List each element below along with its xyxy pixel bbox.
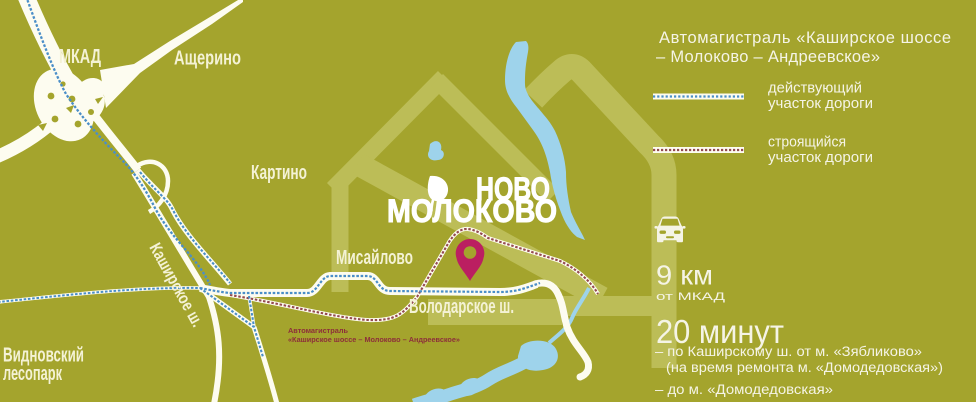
svg-text:лесопарк: лесопарк [3, 363, 63, 385]
svg-text:– по Каширскому ш. от м. «Зябл: – по Каширскому ш. от м. «Зябликово» [655, 344, 922, 359]
svg-text:от МКАД: от МКАД [656, 291, 726, 303]
svg-text:Ащерино: Ащерино [174, 48, 241, 70]
svg-text:МКАД: МКАД [59, 46, 101, 68]
svg-text:МОЛОКОВО: МОЛОКОВО [387, 193, 557, 229]
svg-text:9 км: 9 км [656, 260, 713, 291]
svg-text:Автомагистраль «Каширское шосс: Автомагистраль «Каширское шоссе [659, 29, 951, 47]
svg-text:«Каширское шоссе – Молоково –: «Каширское шоссе – Молоково – Андреевско… [288, 335, 460, 344]
svg-text:– до м. «Домодедовская»: – до м. «Домодедовская» [655, 382, 833, 397]
svg-text:Картино: Картино [251, 162, 307, 184]
svg-text:участок дороги: участок дороги [768, 149, 873, 166]
svg-text:действующий: действующий [768, 80, 862, 97]
svg-text:Володарское ш.: Володарское ш. [409, 296, 514, 318]
svg-text:Мисайлово: Мисайлово [336, 247, 413, 269]
svg-text:– Молоково – Андреевское»: – Молоково – Андреевское» [656, 48, 880, 66]
svg-text:участок дороги: участок дороги [768, 95, 873, 112]
svg-text:Автомагистраль: Автомагистраль [288, 326, 348, 335]
svg-text:(на время ремонта м. «Домодедо: (на время ремонта м. «Домодедовская») [666, 360, 943, 375]
svg-text:строящийся: строящийся [768, 134, 846, 151]
